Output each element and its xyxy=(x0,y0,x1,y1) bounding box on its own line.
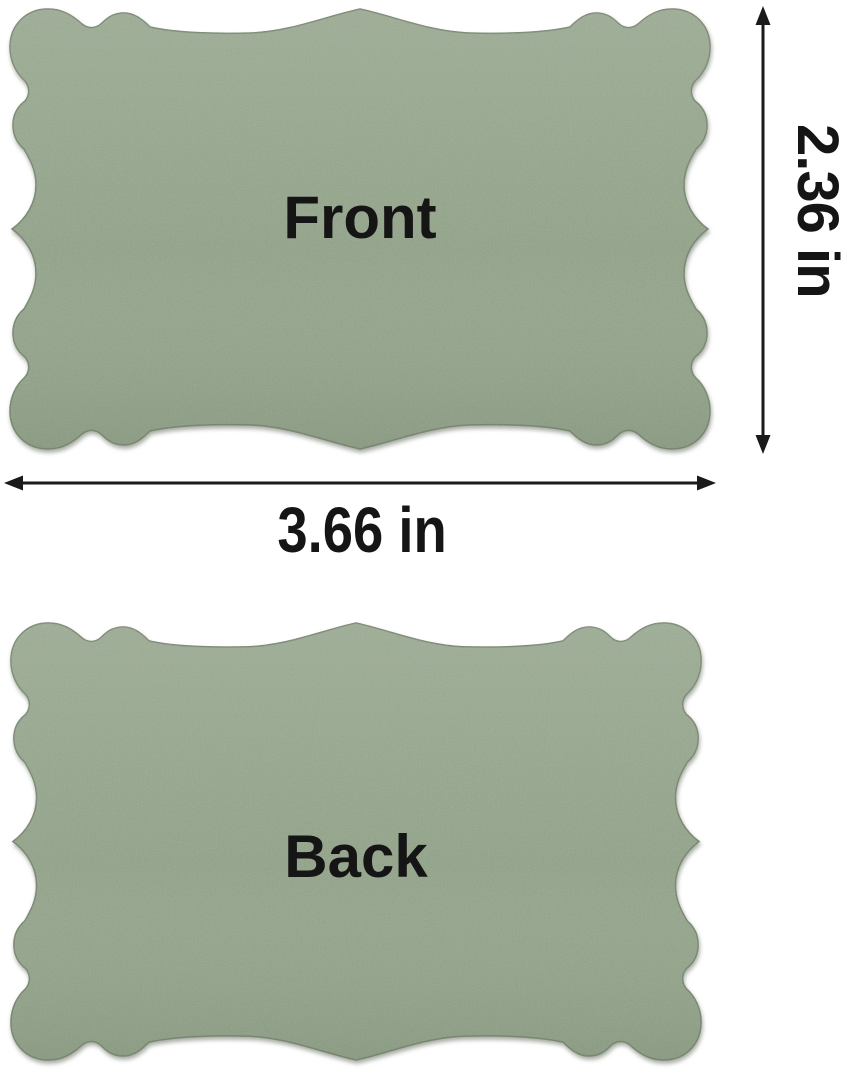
height-dimension-arrow-icon xyxy=(750,6,776,454)
back-card-shape xyxy=(5,617,707,1066)
width-dimension-arrow-icon xyxy=(4,470,716,496)
width-dimension-label: 3.66 in xyxy=(54,498,669,562)
product-dimension-image: Front 2.36 in 3.66 in Back xyxy=(0,0,848,1071)
height-dimension-label: 2.36 in xyxy=(788,124,846,298)
bracket-plaque-shape xyxy=(10,9,710,449)
bracket-plaque-shape xyxy=(11,623,701,1060)
front-card-shape xyxy=(4,3,716,455)
